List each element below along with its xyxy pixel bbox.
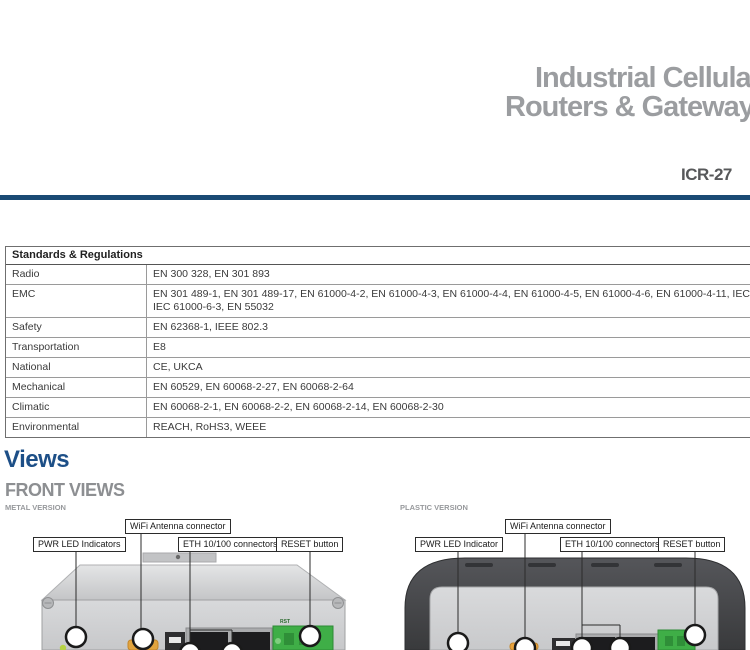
spec-value-cell: EN 60068-2-1, EN 60068-2-2, EN 60068-2-1… xyxy=(147,398,750,417)
spec-value-cell: EN 300 328, EN 301 893 xyxy=(147,265,750,284)
corner-screw-icon xyxy=(333,598,344,609)
metal-reset-button-label: RESET button xyxy=(276,537,343,552)
standards-regulations-table: Standards & Regulations Radio EN 300 328… xyxy=(5,246,750,438)
spec-label-cell: Climatic xyxy=(6,398,147,417)
table-row: Climatic EN 60068-2-1, EN 60068-2-2, EN … xyxy=(6,398,750,418)
spec-value-cell: E8 xyxy=(147,338,750,357)
table-row: Safety EN 62368-1, IEEE 802.3 xyxy=(6,318,750,338)
spec-label-cell: EMC xyxy=(6,285,147,317)
eth1-callout-circle xyxy=(572,638,592,650)
table-row: EMC EN 301 489-1, EN 301 489-17, EN 6100… xyxy=(6,285,750,318)
pwr-callout-circle xyxy=(448,633,468,650)
metal-wifi-antenna-label: WiFi Antenna connector xyxy=(125,519,231,534)
pwr-callout-circle xyxy=(66,627,86,647)
plastic-reset-button-label: RESET button xyxy=(658,537,725,552)
rst-marking: RST xyxy=(280,619,290,625)
plastic-eth-connectors-label: ETH 10/100 connectors xyxy=(560,537,665,552)
reset-callout-circle xyxy=(685,625,705,645)
plastic-pwr-led-label: PWR LED Indicator xyxy=(415,537,503,552)
datasheet-page: Industrial Cellular Routers & Gateways I… xyxy=(0,0,750,650)
table-row: Transportation E8 xyxy=(6,338,750,358)
metal-pwr-led-label: PWR LED Indicators xyxy=(33,537,126,552)
table-title: Standards & Regulations xyxy=(6,247,750,265)
spec-label-cell: Environmental xyxy=(6,418,147,437)
spec-label-cell: Safety xyxy=(6,318,147,337)
reset-callout-circle xyxy=(300,626,320,646)
table-row: Mechanical EN 60529, EN 60068-2-27, EN 6… xyxy=(6,378,750,398)
front-views-subtitle: FRONT VIEWS xyxy=(5,480,125,501)
device-top-face xyxy=(42,565,345,600)
plastic-version-label: PLASTIC VERSION xyxy=(400,503,468,512)
doc-title-line1: Industrial Cellular xyxy=(535,64,750,93)
spec-value-cell: EN 62368-1, IEEE 802.3 xyxy=(147,318,750,337)
metal-eth-connectors-label: ETH 10/100 connectors xyxy=(178,537,283,552)
views-section-title: Views xyxy=(4,446,69,474)
plastic-wifi-antenna-label: WiFi Antenna connector xyxy=(505,519,611,534)
spec-label-cell: Transportation xyxy=(6,338,147,357)
spec-label-cell: Radio xyxy=(6,265,147,284)
spec-label-cell: National xyxy=(6,358,147,377)
doc-title-line2: Routers & Gateways xyxy=(505,93,750,122)
table-row: Radio EN 300 328, EN 301 893 xyxy=(6,265,750,285)
spec-label-cell: Mechanical xyxy=(6,378,147,397)
table-row: Environmental REACH, RoHS3, WEEE xyxy=(6,418,750,437)
wifi-callout-circle xyxy=(133,629,153,649)
spec-value-cell: REACH, RoHS3, WEEE xyxy=(147,418,750,437)
product-model: ICR-27 xyxy=(681,165,732,185)
spec-value-cell: EN 301 489-1, EN 301 489-17, EN 61000-4-… xyxy=(147,285,750,317)
metal-version-label: METAL VERSION xyxy=(5,503,66,512)
tab-screw-icon xyxy=(176,555,180,559)
eth2-callout-circle xyxy=(610,638,630,650)
corner-screw-icon xyxy=(43,598,54,609)
spec-value-cell: CE, UKCA xyxy=(147,358,750,377)
spec-value-cell: EN 60529, EN 60068-2-27, EN 60068-2-64 xyxy=(147,378,750,397)
table-row: National CE, UKCA xyxy=(6,358,750,378)
header-divider-rule xyxy=(0,195,750,200)
wifi-callout-circle xyxy=(515,638,535,650)
